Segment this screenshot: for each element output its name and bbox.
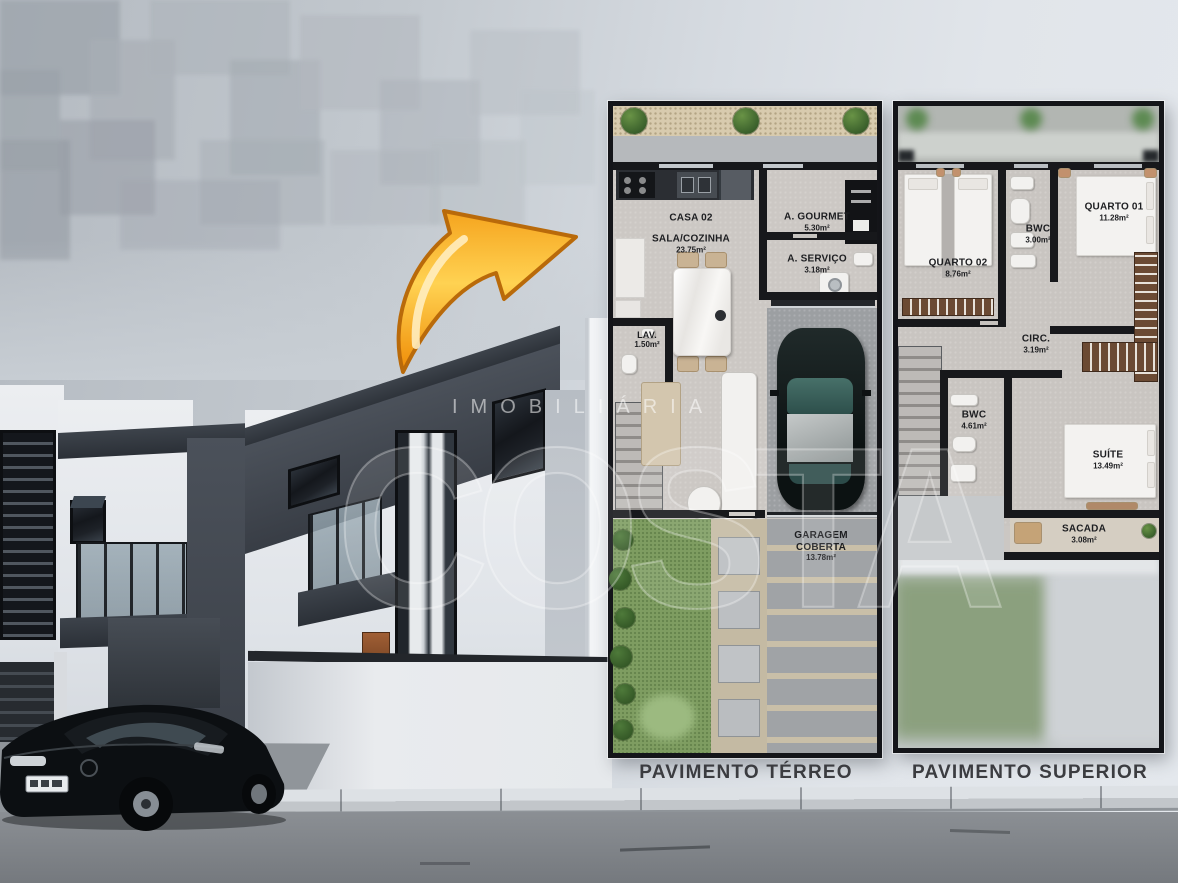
bwc-cabinet <box>1010 254 1036 268</box>
laundry-tank <box>853 252 873 266</box>
paver-path <box>711 519 767 753</box>
room-name: SACADA <box>1062 524 1106 536</box>
cabinet <box>615 300 641 318</box>
room-label-garagem: GARAGEM COBERTA 13.78m² <box>788 530 854 562</box>
roof-blur-strip <box>898 106 1159 162</box>
parked-car-topview <box>777 328 865 510</box>
room-name: BWC <box>962 410 986 422</box>
room-area: 13.49m² <box>1093 461 1123 470</box>
unit-name: CASA 02 <box>669 212 712 224</box>
toilet <box>621 354 637 374</box>
room-label-lav: LAV. 1.50m² <box>634 330 659 350</box>
chaise-sofa <box>641 382 681 466</box>
wicker-sofa <box>1014 522 1042 544</box>
kitchen-sink <box>677 172 717 198</box>
room-name: SUÍTE <box>1093 450 1123 462</box>
garden-light-patch <box>639 694 695 740</box>
louvered-window <box>0 430 56 640</box>
pantry-cabinet <box>615 238 645 298</box>
lower-blur-area <box>898 560 1159 748</box>
dining-chair <box>677 252 699 268</box>
room-label-sacada: SACADA 3.08m² <box>1062 524 1106 545</box>
room-name: A. SERVIÇO <box>787 254 847 266</box>
bed-bench <box>1086 502 1138 510</box>
dining-chair <box>677 356 699 372</box>
room-label-suite: SUÍTE 13.49m² <box>1093 450 1123 471</box>
room-area: 11.28m² <box>1099 213 1128 222</box>
sectional-sofa <box>721 372 757 520</box>
real-estate-composite: IMOBILIÁRIA COSTA <box>0 0 1178 883</box>
room-name: QUARTO 02 <box>929 258 988 270</box>
room-area: 8.76m² <box>945 269 970 278</box>
closet <box>1082 342 1158 372</box>
room-label-bwc-inf: BWC 4.61m² <box>961 410 986 431</box>
room-area: 4.61m² <box>961 421 986 430</box>
room-label-quarto01: QUARTO 01 11.28m² <box>1085 202 1144 223</box>
room-name: QUARTO 01 <box>1085 202 1144 214</box>
floor-plan-terreo: CASA 02 SALA/COZINHA 23.75m² A. GOURMET … <box>608 101 882 758</box>
room-label-gourmet: A. GOURMET 5.30m² <box>784 212 850 233</box>
floor-plan-superior: QUARTO 02 8.76m² BWC 3.00m² QUARTO 01 11… <box>893 101 1164 753</box>
sidewalk-curb <box>140 786 1178 816</box>
room-name: A. GOURMET <box>784 212 850 224</box>
front-wall <box>613 162 877 170</box>
upper-window-right <box>492 388 546 483</box>
room-area: 3.00m² <box>1025 235 1050 244</box>
shower <box>1010 176 1034 190</box>
table-appliance <box>715 310 726 321</box>
room-area: 23.75m² <box>676 245 706 254</box>
dining-chair <box>705 356 727 372</box>
room-area: 3.18m² <box>804 265 829 274</box>
tall-door-window <box>395 430 457 660</box>
car <box>0 688 294 833</box>
fridge <box>719 170 751 200</box>
dining-chair <box>705 252 727 268</box>
toilet <box>952 436 976 452</box>
room-area: 3.19m² <box>1023 345 1048 354</box>
caption-superior: PAVIMENTO SUPERIOR <box>912 762 1148 784</box>
bwc-vanity <box>950 464 976 482</box>
garage-entry-line <box>767 512 877 517</box>
wardrobe <box>902 298 994 316</box>
room-name: GARAGEM COBERTA <box>788 530 854 553</box>
room-area: 1.50m² <box>634 341 659 350</box>
cooktop <box>619 172 655 198</box>
unit-label: CASA 02 <box>669 212 712 224</box>
room-area: 3.08m² <box>1071 535 1096 544</box>
room-label-servico: A. SERVIÇO 3.18m² <box>787 254 847 275</box>
shrub <box>843 108 869 134</box>
landing-floor <box>898 496 1004 560</box>
room-label-bwc-sup: BWC 3.00m² <box>1025 224 1050 245</box>
front-patio <box>613 136 877 162</box>
staircase <box>898 346 942 496</box>
room-area: 5.30m² <box>804 223 829 232</box>
awning-sash <box>70 496 106 508</box>
garage-back-door <box>771 300 875 308</box>
room-name: CIRC. <box>1022 334 1050 346</box>
callout-arrow-icon <box>388 185 593 385</box>
balcony-plant <box>1142 524 1156 538</box>
room-label-circ: CIRC. 3.19m² <box>1022 334 1050 355</box>
room-area: 13.78m² <box>806 553 836 562</box>
toilet <box>1010 198 1030 224</box>
shrub <box>733 108 759 134</box>
room-name: SALA/COZINHA <box>652 234 730 246</box>
room-label-sala-cozinha: SALA/COZINHA 23.75m² <box>652 234 730 255</box>
caption-terreo: PAVIMENTO TÉRREO <box>639 762 852 784</box>
room-label-quarto02: QUARTO 02 8.76m² <box>929 258 988 279</box>
shrub <box>621 108 647 134</box>
shower <box>950 394 978 406</box>
room-name: LAV. <box>637 330 657 340</box>
room-name: BWC <box>1026 224 1050 236</box>
